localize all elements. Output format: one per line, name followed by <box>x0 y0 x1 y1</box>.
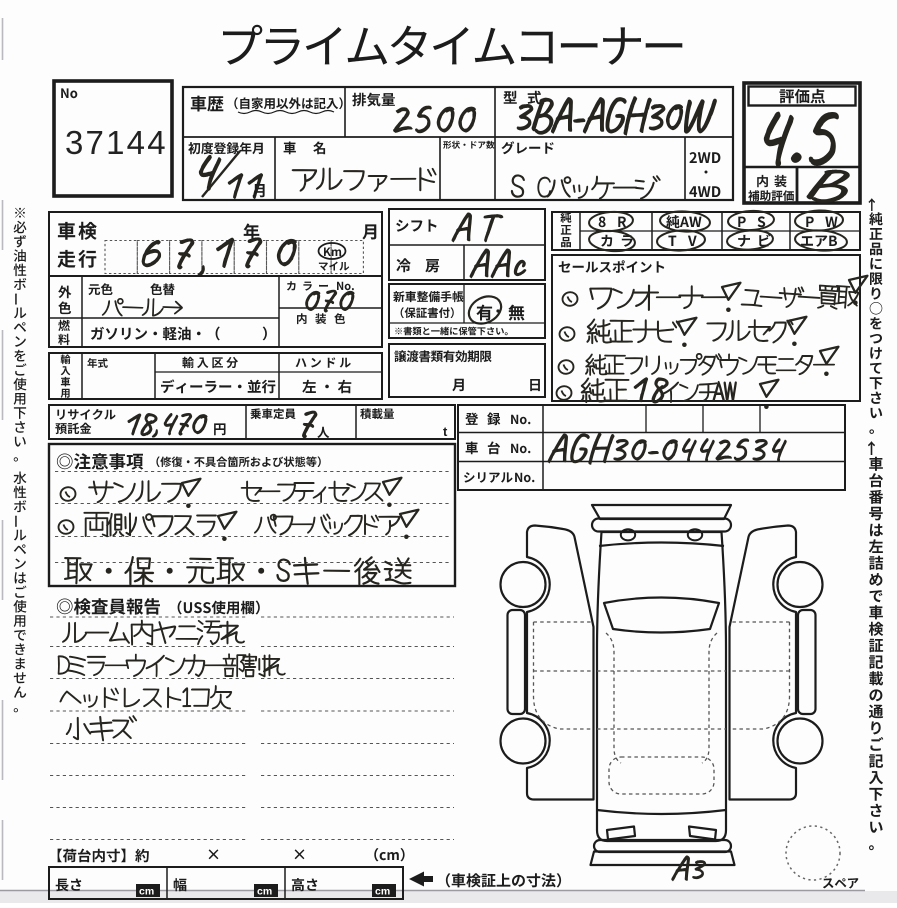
svg-text:t: t <box>443 424 448 439</box>
svg-text:cm: cm <box>257 886 272 898</box>
svg-text:37144: 37144 <box>65 124 168 161</box>
svg-text:cm: cm <box>139 886 154 898</box>
svg-text:cm: cm <box>375 886 390 898</box>
